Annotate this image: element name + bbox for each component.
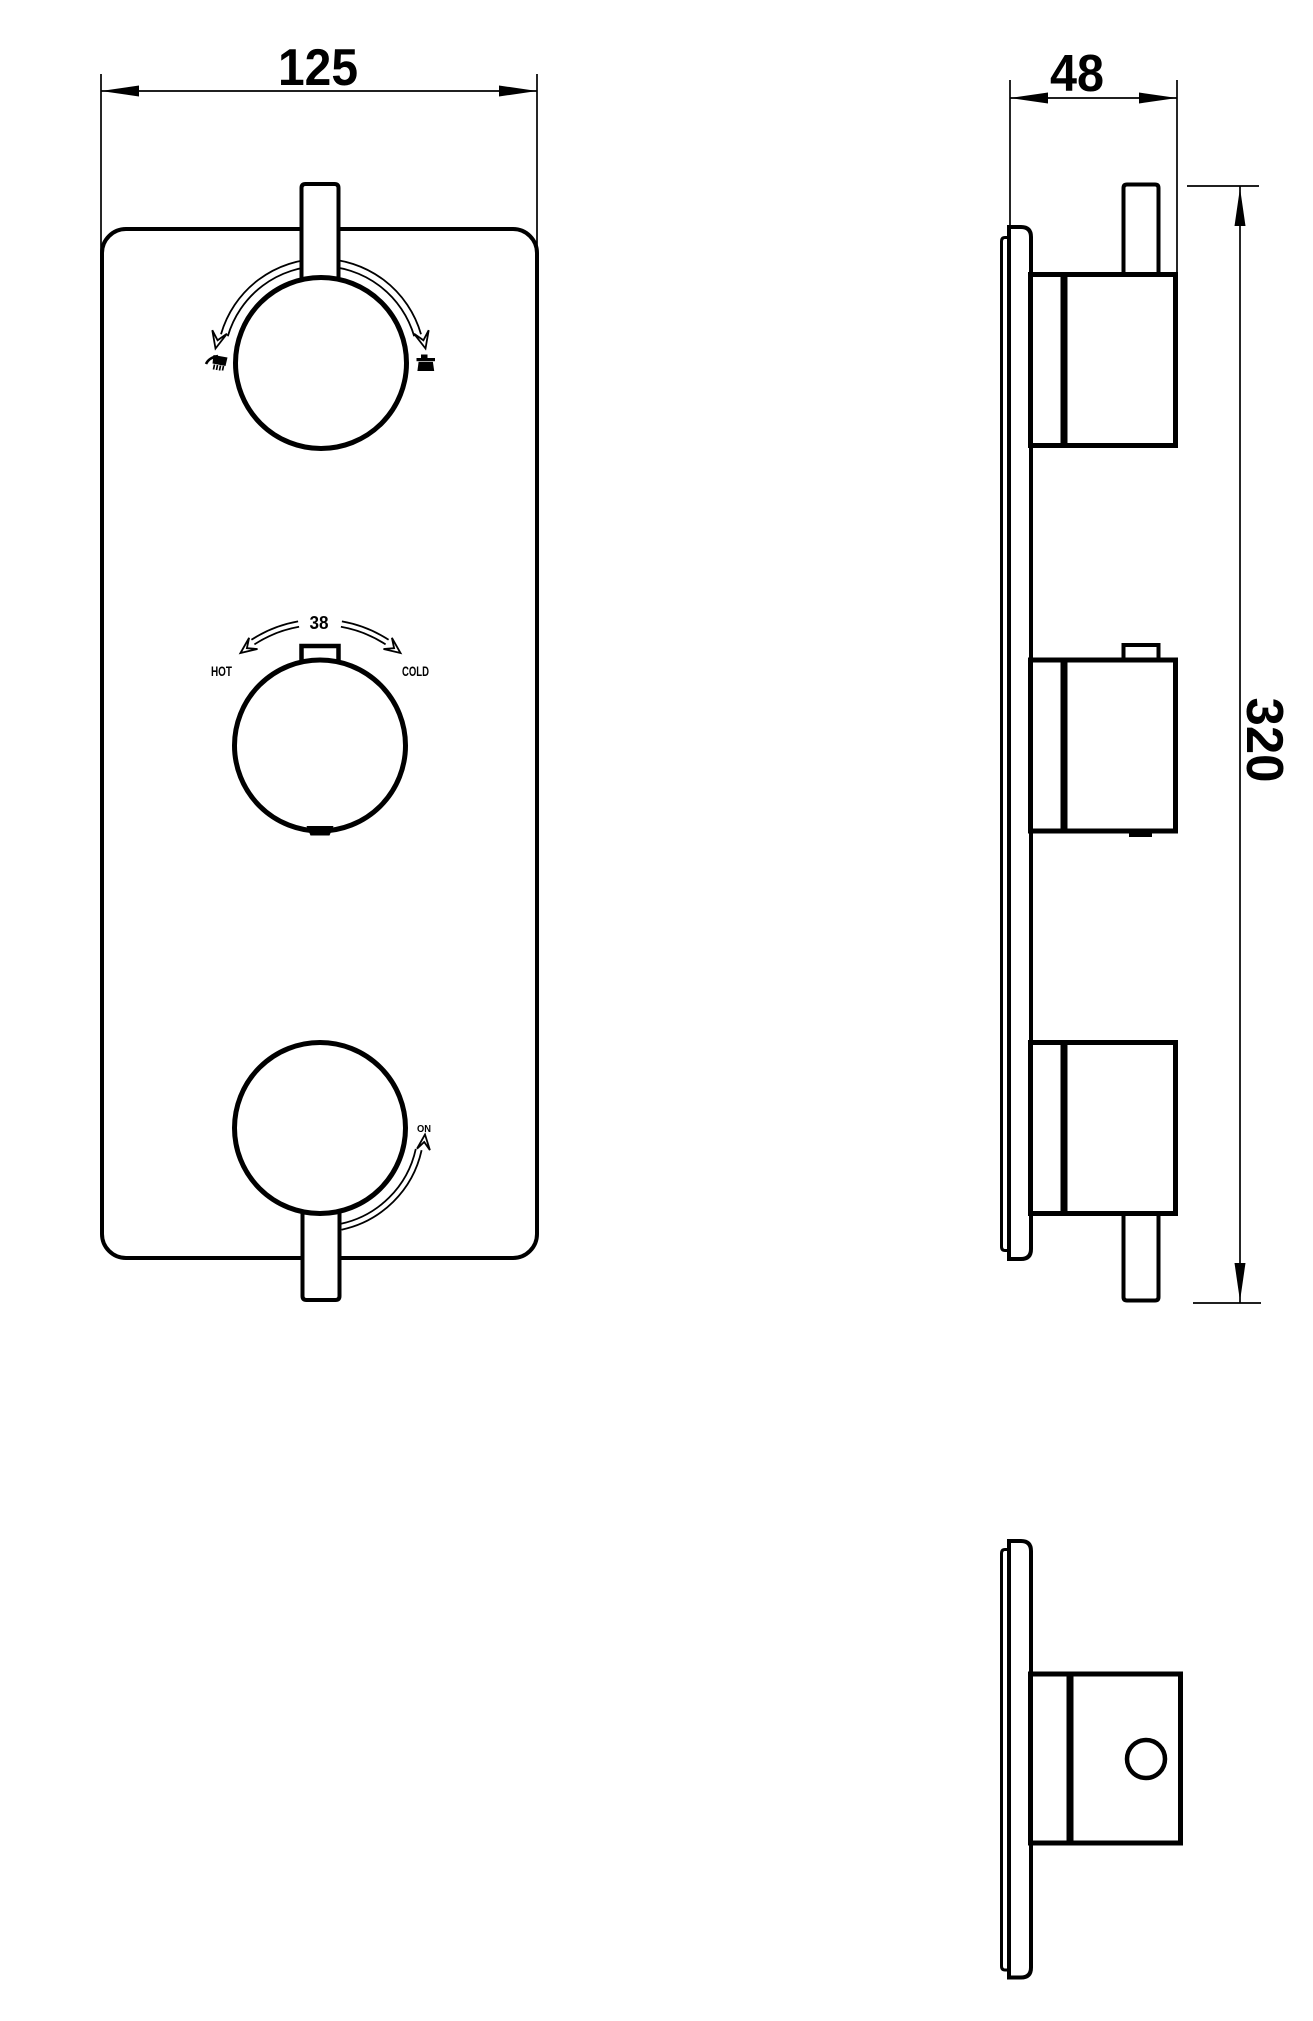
svg-text:48: 48 — [1050, 45, 1104, 103]
svg-text:125: 125 — [278, 39, 358, 97]
svg-text:38: 38 — [310, 613, 329, 633]
svg-text:ON: ON — [417, 1124, 431, 1135]
svg-text:COLD: COLD — [402, 664, 429, 679]
svg-text:320: 320 — [1235, 698, 1293, 783]
svg-text:HOT: HOT — [211, 664, 232, 679]
